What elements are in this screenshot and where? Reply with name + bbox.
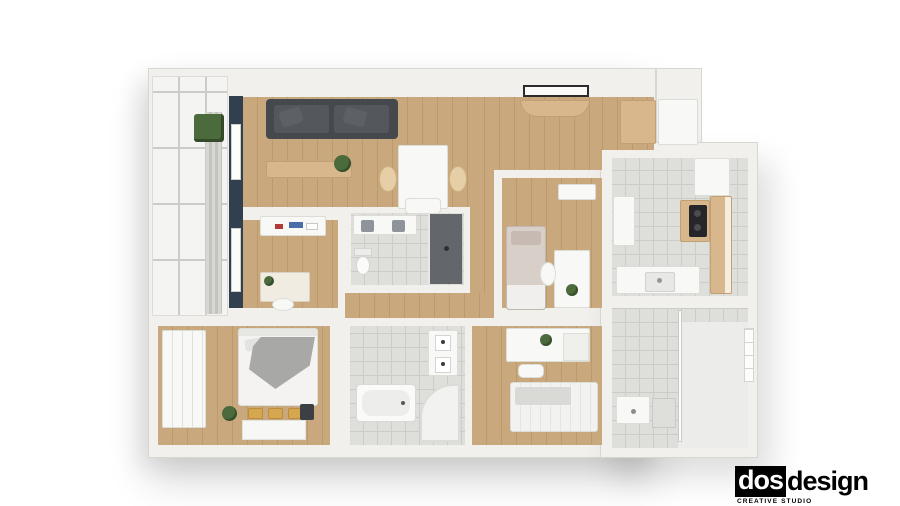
middle-bedroom-dresser	[558, 184, 596, 200]
bathroom1-vanity	[353, 215, 417, 235]
floorplan-render: dosdesign CREATIVE STUDIO	[0, 0, 900, 506]
logo-design-text: design	[786, 468, 868, 495]
master-rug	[242, 420, 306, 440]
bathroom3-bench	[652, 398, 676, 428]
logo-wordmark: dosdesign	[735, 466, 868, 497]
middle-bedroom-chair	[540, 262, 556, 286]
toilet-tank	[354, 248, 372, 256]
bed-pillow	[511, 231, 541, 245]
bedroom3-desk-plant	[540, 334, 552, 346]
toilet-bowl	[356, 256, 370, 275]
bedroom3-bed	[510, 382, 598, 432]
basket-1	[248, 408, 263, 419]
master-plant	[222, 406, 237, 421]
master-wardrobe	[162, 330, 206, 428]
kitchen-left-cabinet	[613, 196, 635, 246]
study-window	[231, 228, 241, 292]
master-bag	[300, 404, 314, 420]
bedroom3-stool	[518, 364, 544, 378]
toy-white	[306, 223, 318, 230]
bathroom1-shower	[428, 214, 462, 284]
bathroom3-glass-partition	[678, 310, 682, 442]
balcony-plant-box	[194, 114, 224, 142]
bathtub	[356, 384, 416, 422]
tv-panel	[231, 124, 241, 180]
sink-right	[392, 220, 405, 232]
sofa	[266, 99, 398, 139]
bed-sheet	[507, 285, 545, 309]
basin-bottom-faucet	[441, 362, 445, 366]
shower-drain	[444, 246, 449, 251]
hall-wardrobe-door	[658, 99, 698, 145]
basin-top-faucet	[441, 340, 445, 344]
bedroom3-mattress	[515, 387, 571, 405]
dining-chair-bottom	[405, 198, 441, 214]
console-plant	[334, 155, 351, 172]
logo-tagline: CREATIVE STUDIO	[737, 498, 812, 505]
bathtub-drain	[401, 401, 405, 405]
burner-2	[694, 224, 701, 231]
cooktop	[689, 205, 707, 237]
master-throw-blanket	[249, 337, 315, 389]
master-headboard	[239, 329, 317, 336]
bathroom3-window	[744, 328, 754, 382]
study-desk-plant	[264, 276, 274, 286]
sink-left	[361, 220, 374, 232]
basket-2	[268, 408, 283, 419]
entry-console	[520, 100, 590, 117]
toy-blue	[289, 222, 303, 228]
kitchen-bottom-counter	[616, 266, 700, 294]
kitchen-faucet	[657, 278, 662, 283]
bathroom3-drain	[631, 409, 636, 414]
dosdesign-logo: dosdesign CREATIVE STUDIO	[735, 466, 868, 505]
desk-drawers	[563, 333, 589, 361]
hall-wardrobe	[620, 100, 656, 144]
dining-chair-right	[449, 166, 467, 192]
study-wall-shelf	[260, 216, 326, 236]
burner-1	[694, 210, 701, 217]
corridor-horizontal	[345, 293, 494, 318]
master-bed	[238, 328, 318, 406]
toy-red	[275, 224, 283, 229]
logo-dos-box: dos	[735, 466, 786, 497]
study-chair	[272, 298, 294, 311]
balcony-curtain	[206, 112, 222, 314]
entry-mirror	[523, 85, 589, 97]
middle-bedroom-desk-plant	[566, 284, 578, 296]
kitchen-cooktop-counter	[680, 200, 710, 242]
bathroom2-vanity	[428, 330, 458, 376]
middle-bedroom-desk	[554, 250, 590, 308]
kitchen-tall-unit	[710, 196, 732, 294]
dining-chair-left	[379, 166, 397, 192]
kitchen-upper-cabinet	[694, 158, 730, 196]
toilet	[354, 248, 372, 276]
bathroom3-shower-tray	[616, 396, 650, 424]
